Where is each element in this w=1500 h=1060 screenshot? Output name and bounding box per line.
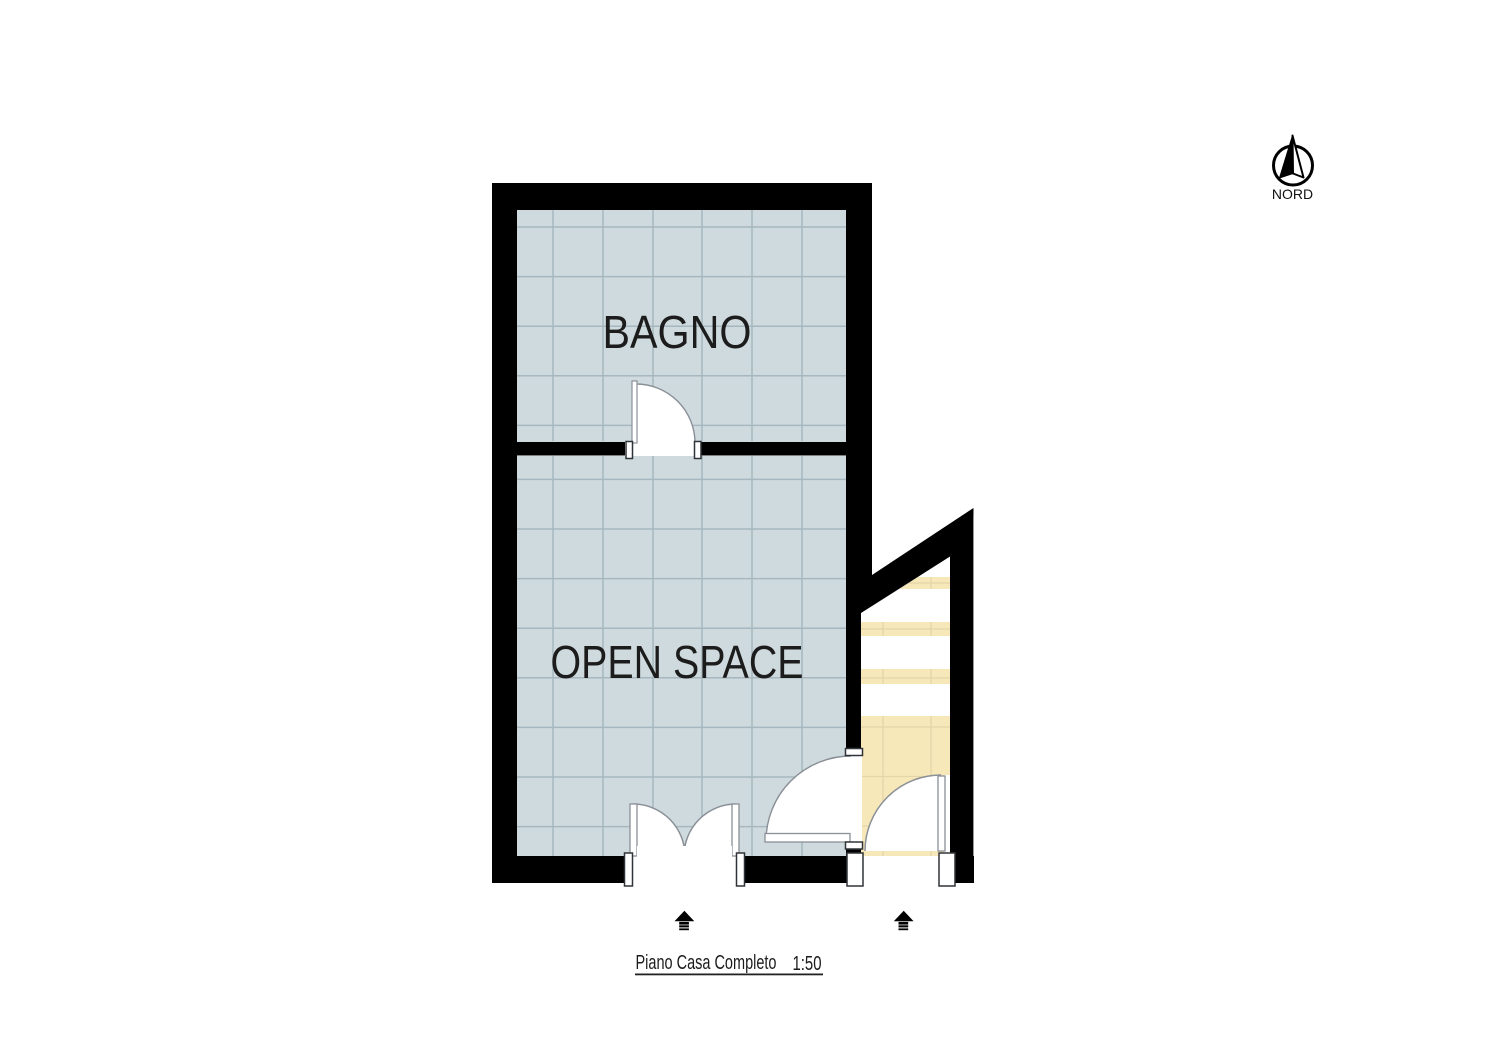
svg-text:Piano Casa Completo: Piano Casa Completo bbox=[636, 951, 777, 974]
svg-text:OPEN SPACE: OPEN SPACE bbox=[551, 636, 804, 688]
svg-text:BAGNO: BAGNO bbox=[603, 306, 752, 358]
svg-text:NORD: NORD bbox=[1272, 186, 1313, 202]
svg-text:1:50: 1:50 bbox=[793, 952, 822, 975]
